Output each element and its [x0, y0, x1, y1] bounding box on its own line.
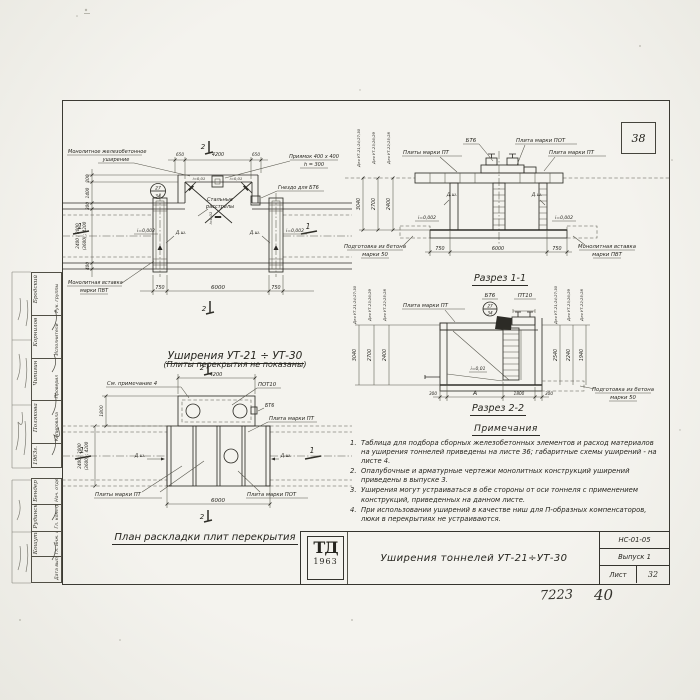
see-note-callout: См. примечание 4 [107, 381, 157, 387]
dim-6000: 6000 [211, 498, 225, 504]
slab-field [167, 426, 270, 486]
bt6-label: БТ6 [265, 403, 274, 409]
detail-bottom-number: 34 [487, 311, 493, 316]
stamp-name: Корнилов [33, 318, 39, 356]
variant-height-3: 2400 [382, 349, 388, 361]
sheet-label: Лист [600, 566, 637, 583]
notes-title: Примечания [472, 424, 540, 436]
drawing-sheet: 38 [0, 0, 700, 700]
org-logo: ТД 1963 [307, 536, 344, 580]
note-number: 2. [350, 467, 361, 485]
widening-callout-line2: уширение [102, 157, 130, 163]
variant-caption-2: Для УТ-23;26;29 [371, 131, 376, 165]
detail-bottom-number: 34 [155, 194, 161, 200]
stamp-role: Дата выпуска [55, 559, 60, 580]
issue-number: Выпуск 1 [600, 549, 669, 566]
bt6-label: БТ6 [485, 293, 496, 299]
dim-300-left: 300 [429, 391, 437, 396]
notes-title-wrap: Примечания [350, 424, 662, 436]
dim-750-right: 750 [271, 285, 280, 291]
dim-400: 400 [85, 262, 90, 270]
slope-label: i=0,01 [470, 366, 485, 372]
title-block-right-column: НС-01-05 Выпуск 1 Лист 32 [599, 532, 669, 584]
pot-plate-label: Плита марки ПОТ [247, 492, 297, 498]
notes-block: Примечания 1. Таблица для подбора сборны… [350, 424, 662, 525]
pt-plates-label: Плиты марки ПТ [403, 150, 450, 156]
variant-caption-2: Для УТ-23;26;29 [367, 288, 372, 322]
section-1-1-view: БТ6 Плита марки ПОТ Плиты марки ПТ Плита… [345, 115, 670, 265]
insert-callout-line2: марки ПВТ [80, 288, 109, 294]
joint-right-label: Д.ш. [531, 192, 543, 198]
stamp-role: Нач. отдела [55, 481, 60, 502]
stamp-name: Бендер [33, 481, 39, 502]
dim-300: 300 [85, 202, 90, 210]
org-logo-monogram: ТД [308, 539, 343, 557]
variant-height-1: 2540 [553, 349, 559, 361]
note-number: 4. [350, 506, 361, 524]
plan-bottom-title-wrap: План раскладки плит перекрытия [85, 525, 325, 545]
section2-title-wrap: Разрез 2-2 [438, 396, 558, 416]
slope-inner-left: i=0,01 [193, 176, 206, 181]
monolithic-insert-left [153, 193, 167, 277]
dim-750-left: 750 [435, 246, 444, 252]
variant-height-1: 3040 [352, 349, 358, 361]
stamp-role: Исполнители [55, 318, 60, 356]
socket-callout: Гнездо для БТ6 [278, 185, 319, 191]
stamp-table-lower: Дата выпуска Кошутин Гл. инж. пр. Рудинс… [31, 478, 62, 583]
struts-label-line1: Стальные [207, 197, 233, 203]
pt-plates-label: Плиты марки ПТ [95, 492, 142, 498]
monolithic-insert-right [269, 193, 283, 277]
variant-height-3: 1940 [579, 349, 585, 361]
section-mark-2-top: 2 [200, 364, 205, 372]
stamp-cell-checker: Чипигин Проверил [32, 359, 61, 402]
stamp-cell-chief-engineer: Кошутин Гл. инж. пр. [32, 532, 61, 558]
section1-bottom-dimension: 750 6000 750 [425, 230, 572, 256]
dim-1400: 1400 [85, 187, 90, 198]
prep-callout-line1: Подготовка из бетона [344, 244, 406, 250]
stamp-name: Чипигин [33, 361, 39, 399]
note-item-4: 4. При использовании уширений в качестве… [350, 506, 662, 524]
roof-slabs [415, 151, 563, 245]
prep-callout-line2: марки 50 [362, 252, 388, 258]
insert-callout-line1: Монолитная вставка [578, 244, 636, 250]
joint-left-label: Д.ш. [175, 230, 187, 236]
handwritten-signature [17, 500, 28, 572]
prep-callout-line1: Подготовка из бетона [592, 387, 654, 393]
detail-top-number: 27 [155, 186, 161, 192]
handwritten-signature [16, 298, 28, 455]
detail-mark-circle: 27 34 [483, 302, 497, 316]
section1-title-wrap: Разрез 1-1 [440, 266, 560, 286]
stamp-role: Гл. инж. пр. [55, 534, 60, 555]
pit-callout-line2: h = 300 [304, 162, 324, 168]
slope-right-label: i=0,002 [286, 228, 304, 234]
stamp-cell-chief-designer: Рудинский Гл. конструктор [32, 505, 61, 532]
tunnel-walls [62, 203, 352, 269]
slope-right-label: i=0,002 [555, 215, 573, 221]
plan-view-widening: 27 34 650 4200 650 200 1400 300 2400 ; 3… [62, 105, 352, 320]
dim-tunnel-line2: (3600) ; 4200 [82, 221, 87, 250]
variant-height-3: 2400 [386, 198, 392, 210]
section2-title: Разрез 2-2 [470, 403, 526, 416]
pit-callout-line1: Приямок 400 х 400 [289, 154, 339, 160]
variant-height-1: 3040 [356, 198, 362, 210]
section-mark-1-left: 1 [80, 446, 85, 455]
org-logo-year: 1963 [308, 557, 343, 566]
section2-height-dimensions-right: Для УТ-21;24;27;30 Для УТ-23;26;29 Для У… [542, 285, 590, 385]
section-2-2-view: 27 34 БТ6 ПТ10 Плита марки ПТ i=0,01 Под… [345, 285, 670, 403]
struts-label-line2: расстрелы [205, 204, 234, 210]
section-mark-2-top: 2 [201, 143, 206, 151]
dim-1800: 1800 [99, 405, 105, 417]
upper-slab-pot10 [178, 396, 257, 426]
pot-plate-label: Плита марки ПОТ [516, 138, 566, 144]
floor-slab [359, 226, 597, 238]
slope-left-label: i=0,002 [137, 228, 155, 234]
section1-height-dimensions: Для УТ-21;24;27;30 Для УТ-23;26;29 Для У… [356, 128, 395, 231]
variant-caption-1: Для УТ-21;24;27;30 [553, 285, 558, 325]
stamp-role: Рук. группы [55, 275, 60, 313]
note-item-1: 1. Таблица для подбора сборных железобет… [350, 439, 662, 466]
variant-caption-1: Для УТ-21;24;27;30 [352, 285, 357, 325]
pt10-label: ПТ10 [518, 293, 533, 299]
stamp-role: Гл. конструктор [55, 507, 60, 529]
stamp-table-upper: 1963г. Полякова Копировала Чипигин Прове… [31, 272, 62, 468]
variant-height-2: 2700 [367, 349, 373, 361]
joint-right-label: Д.ш. [249, 230, 261, 236]
pt-plate-label: Плита марки ПТ [269, 416, 315, 422]
slope-left-label: i=0,002 [418, 215, 436, 221]
section-mark-2-bottom: 2 [202, 305, 207, 313]
tunnel-walls-dashed [62, 426, 352, 486]
sheet-number: 32 [637, 566, 669, 583]
variant-caption-3: Для УТ-22;25;28 [386, 131, 391, 165]
bt6-label: БТ6 [466, 138, 477, 144]
dim-200: 200 [85, 174, 90, 182]
insert-callout-line2: марки ПВТ [592, 252, 623, 258]
stamp-year: 1963г. [33, 446, 39, 465]
pot10-label: ПОТ10 [258, 382, 277, 388]
joint-left-label: Д.ш. [446, 192, 458, 198]
stamp-cell-group-lead: Бродский Рук. группы [32, 273, 61, 316]
detail-mark-circle: 27 34 [151, 184, 166, 200]
prep-callout-line2: марки 50 [610, 395, 636, 401]
note-text: При использовании уширений в качестве ни… [361, 506, 662, 524]
walls-and-column [450, 183, 547, 230]
note-number: 1. [350, 439, 361, 466]
dim-6000: 6000 [492, 246, 504, 252]
widening-callout-line1: Монолитное железобетонное [68, 149, 146, 155]
drawing-title: Уширения тоннелей УТ-21÷УТ-30 [348, 532, 600, 584]
slope-center: i=0,01 [208, 212, 213, 225]
section-mark-1-right: 1 [306, 222, 311, 231]
section-mark-2-bottom: 2 [200, 513, 205, 521]
plan-bottom-title: План раскладки плит перекрытия [112, 532, 297, 545]
document-code: НС-01-05 [600, 532, 669, 549]
pt-plate-label: Плита марки ПТ [403, 303, 449, 309]
stamp-name: Бродский [33, 275, 39, 313]
plan-bottom-callouts: См. примечание 4 ПОТ10 БТ6 Плита марки П… [94, 381, 317, 498]
dim-650-right: 650 [252, 152, 260, 157]
note-number: 3. [350, 486, 361, 504]
section2-height-dimensions-left: Для УТ-21;24;27;30 Для УТ-23;26;29 Для У… [352, 285, 440, 385]
stamp-cell-copier: Полякова Копировала [32, 401, 61, 444]
note-item-3: 3. Уширения могут устраиваться в обе сто… [350, 486, 662, 504]
stamp-cell-executor: Корнилов Исполнители [32, 316, 61, 359]
variant-caption-2: Для УТ-23;26;29 [566, 288, 571, 322]
stamp-cell-issue-date: Дата выпуска [32, 557, 61, 582]
dim-6000: 6000 [211, 285, 225, 291]
variant-caption-1: Для УТ-21;24;27;30 [356, 128, 361, 168]
note-item-2: 2. Опалубочные и арматурные чертежи моно… [350, 467, 662, 485]
stamp-role: Проверил [55, 361, 60, 399]
cutoff-signature-column [12, 272, 31, 583]
insert-callout-line1: Монолитная вставка [68, 280, 123, 286]
note-text: Таблица для подбора сборных железобетонн… [361, 439, 662, 466]
dim-4200: 4200 [212, 152, 224, 158]
plan-view-slab-layout: См. примечание 4 ПОТ10 БТ6 Плита марки П… [62, 360, 352, 530]
stamp-name: Кошутин [33, 534, 39, 555]
section-mark-1-left: 1 [78, 222, 83, 231]
note-text: Опалубочные и арматурные чертежи монолит… [361, 467, 662, 485]
variant-caption-3: Для УТ-22;25;28 [382, 288, 387, 322]
sheet-cell: Лист 32 [600, 566, 669, 583]
stamp-cell-year: 1963г. [32, 444, 61, 467]
dim-750-left: 750 [155, 285, 164, 291]
footer-page-number: 40 [594, 586, 613, 604]
plan-callouts: Монолитное железобетонное уширение Приям… [67, 149, 339, 294]
variant-height-2: 2700 [371, 198, 377, 210]
pt-plate-label: Плита марки ПТ [549, 150, 595, 156]
joint-right-label: Д.ш. [280, 453, 292, 459]
footer-inventory-number: 7223 [540, 587, 574, 603]
dim-750-right: 750 [552, 246, 561, 252]
stamp-name: Полякова [33, 403, 39, 441]
stamp-role: Копировала [55, 403, 60, 441]
bottom-dimension: 750 6000 750 [140, 275, 314, 295]
stamp-cell-dept-head: Бендер Нач. отдела [32, 479, 61, 505]
dim-650-left: 650 [176, 152, 184, 157]
title-block: ТД 1963 Уширения тоннелей УТ-21÷УТ-30 НС… [300, 531, 670, 585]
section-mark-1-right: 1 [310, 446, 315, 455]
stamp-name: Рудинский [33, 507, 39, 529]
note-text: Уширения могут устраиваться в обе сторон… [361, 486, 662, 504]
joint-left-label: Д.ш. [134, 453, 146, 459]
slope-inner-right: i=0,01 [230, 176, 243, 181]
variant-height-2: 2240 [566, 349, 572, 361]
variant-caption-3: Для УТ-22;25;28 [579, 288, 584, 322]
detail-top-number: 27 [487, 304, 493, 309]
